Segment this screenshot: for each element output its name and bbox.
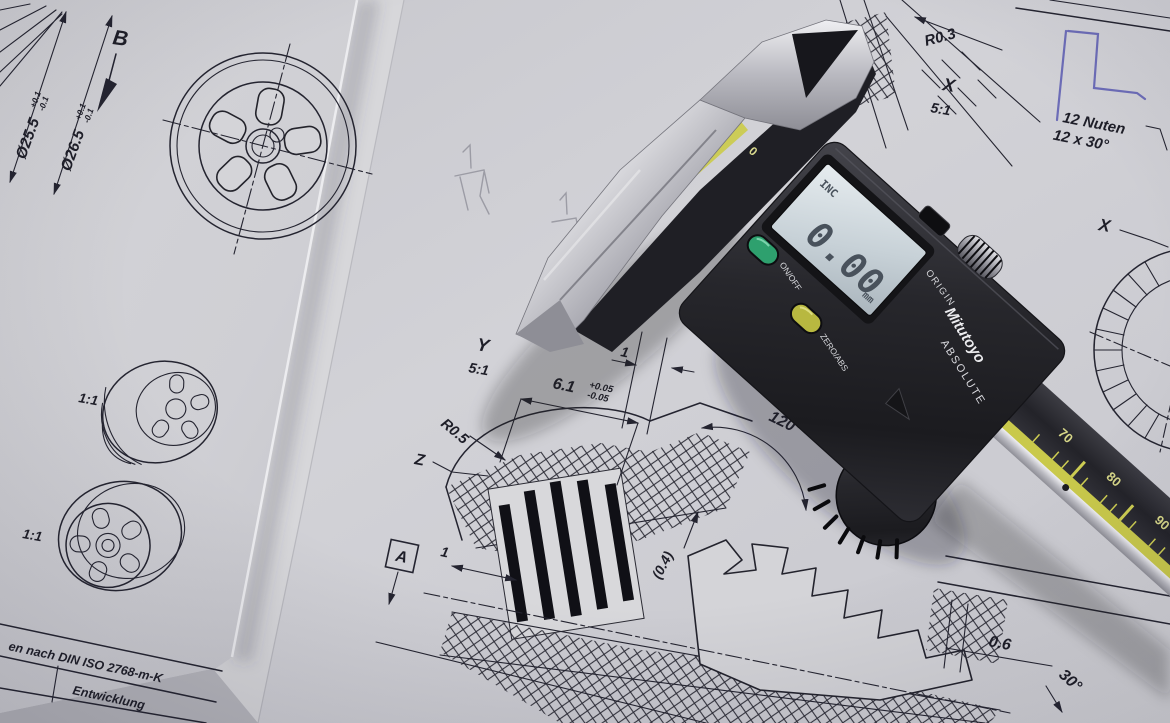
photo-caliper-on-drawings: Y 5:1 R0.5 Z 6.1 +0.05 -0.05 bbox=[0, 0, 1170, 723]
photo-vignette bbox=[0, 0, 1170, 723]
